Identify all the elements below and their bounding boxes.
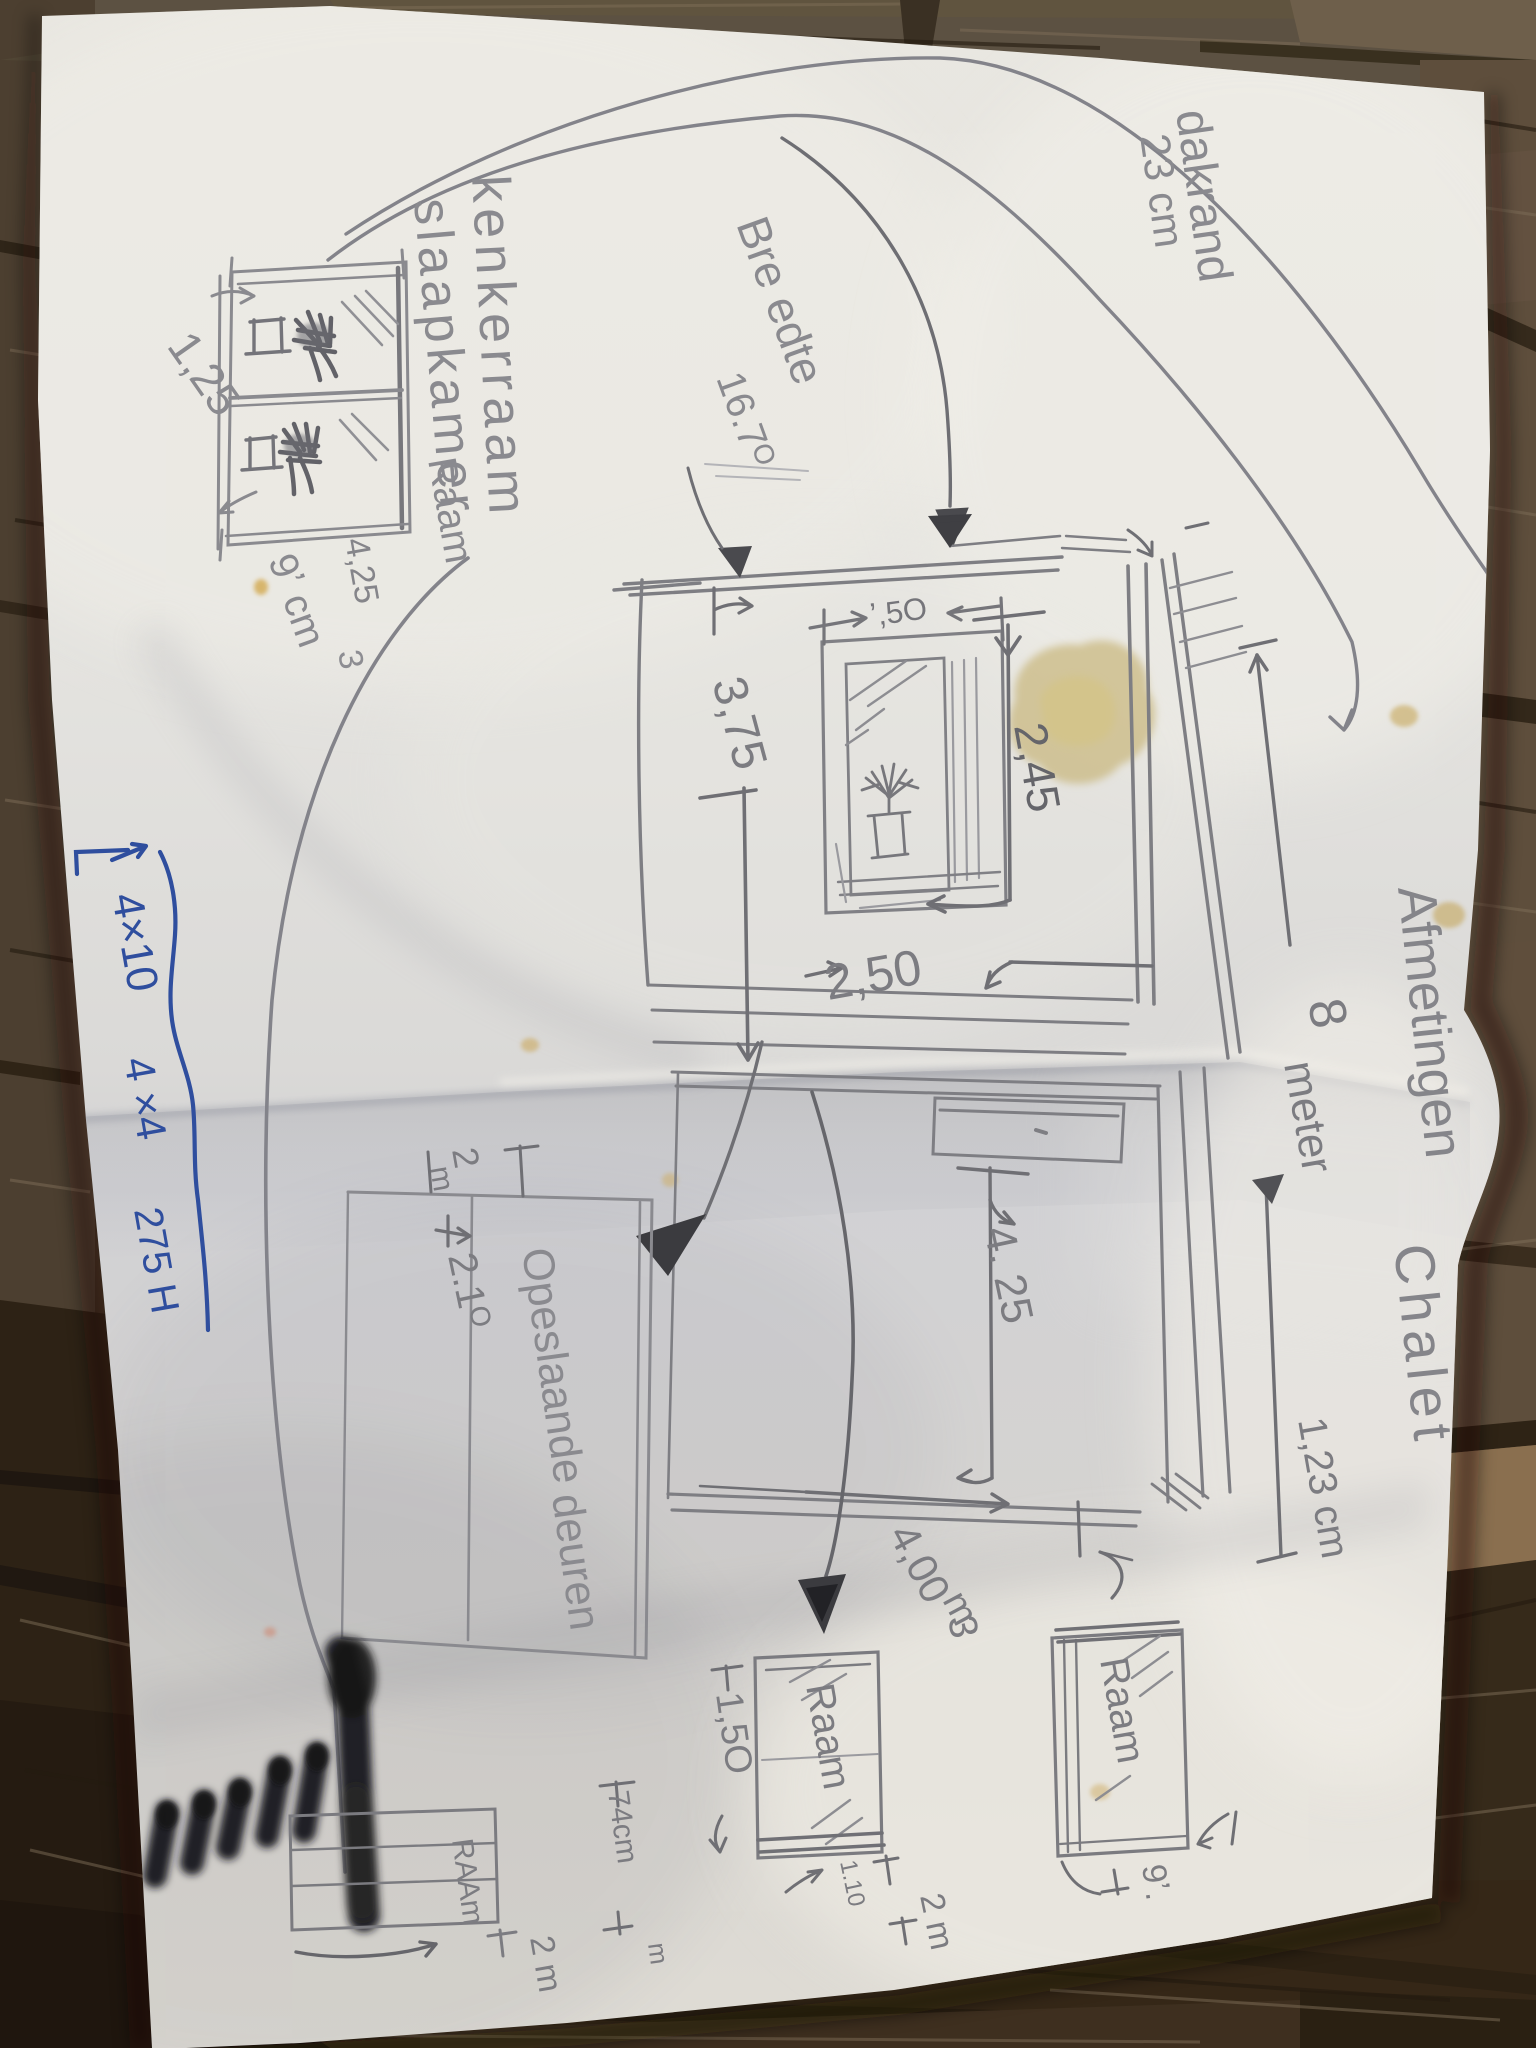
svg-text:9ʼ.: 9ʼ.: [1134, 1862, 1177, 1903]
svg-text:m: m: [642, 1941, 675, 1967]
